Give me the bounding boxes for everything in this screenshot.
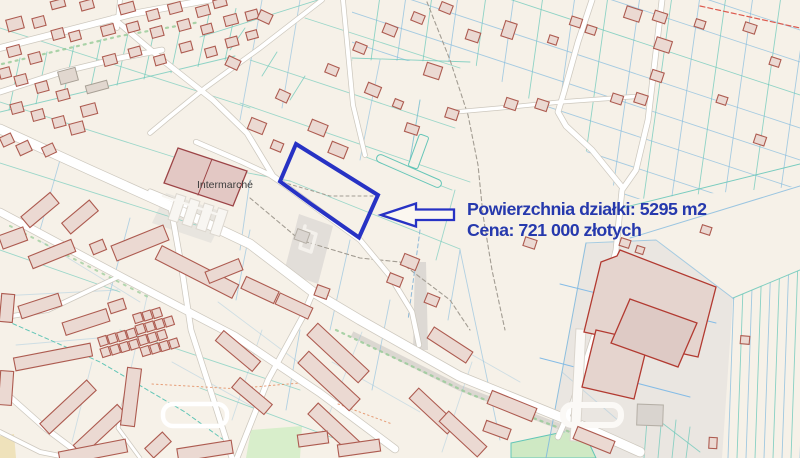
svg-text:Cena: 721 000 złotych: Cena: 721 000 złotych (467, 220, 641, 240)
svg-text:Intermarché: Intermarché (197, 179, 253, 191)
svg-text:Powierzchnia działki: 5295 m2: Powierzchnia działki: 5295 m2 (467, 199, 707, 219)
